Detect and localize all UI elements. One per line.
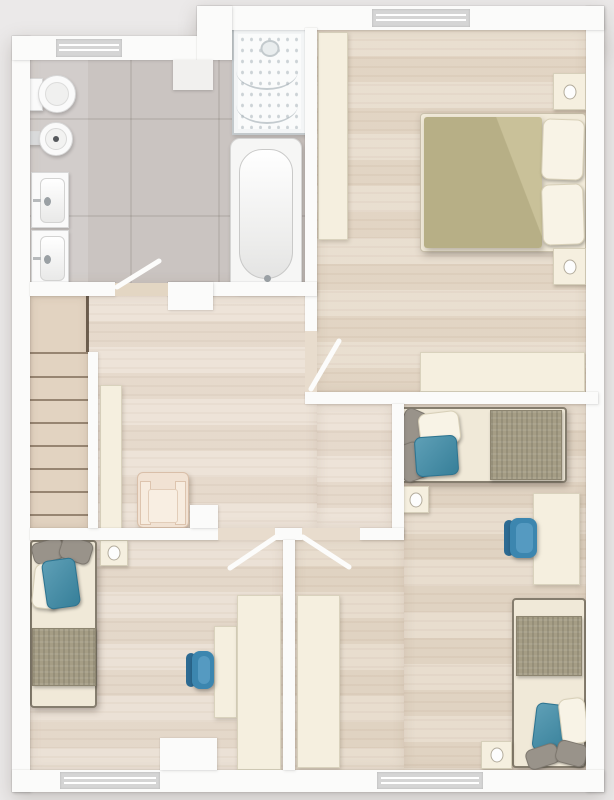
master-pillow-1 xyxy=(541,118,585,180)
tile-line xyxy=(130,45,132,283)
wall-bedroom-sw-north xyxy=(30,528,218,540)
vanity-basin-1-tap-icon xyxy=(44,197,51,206)
bedroom-east-nightstand-1 xyxy=(402,486,429,513)
window-bathroom-north xyxy=(56,39,122,57)
landing-armchair xyxy=(137,472,189,528)
headboard-cushion xyxy=(554,738,590,768)
shower-arc xyxy=(236,52,298,90)
chair-pad xyxy=(516,523,533,553)
vanity-basin-1-handle-icon xyxy=(33,199,41,202)
threshold-master xyxy=(305,331,317,392)
nightstand-knob-icon xyxy=(563,259,576,274)
vanity-basin-2 xyxy=(31,230,69,286)
master-nightstand-top xyxy=(553,73,586,110)
master-pillow-2 xyxy=(541,183,585,245)
chimney-breast-bathroom xyxy=(173,60,213,90)
chimney-breast-south xyxy=(160,738,217,770)
nightstand-knob-icon xyxy=(490,748,503,763)
wall-pillar-hall-north xyxy=(168,282,213,310)
window-master-north xyxy=(372,9,470,27)
tile-line xyxy=(218,45,220,283)
master-wardrobe-tall xyxy=(318,32,348,240)
vanity-basin-2-tap-icon xyxy=(44,255,51,264)
threshold-bedroom-southwest xyxy=(218,528,275,540)
toilet-bowl xyxy=(45,82,69,106)
bedroom-sw-wardrobe xyxy=(237,595,281,770)
stair-handrail xyxy=(86,295,89,352)
threshold-bedroom-east xyxy=(302,528,360,540)
nightstand-knob-icon xyxy=(563,84,576,99)
wall-bedrooms-divider xyxy=(283,540,295,770)
stair-tread-line xyxy=(30,514,88,516)
armchair-seat xyxy=(148,489,178,523)
bedroom-east-nightstand-2 xyxy=(481,741,512,769)
wall-master-south xyxy=(305,392,598,404)
bedroom-east-office-chair xyxy=(504,518,537,558)
stair-tread-line xyxy=(30,445,88,447)
bedroom-east-desk xyxy=(533,493,580,585)
bed-pillow-white xyxy=(557,697,589,746)
toilet xyxy=(38,75,76,113)
vanity-basin-1 xyxy=(31,172,69,228)
stair-tread-line xyxy=(30,376,88,378)
shower-enclosure xyxy=(232,28,307,135)
master-wardrobe-low xyxy=(420,352,585,392)
wall-bedroom-east-west xyxy=(392,404,404,538)
bedroom-east-single-bed-1 xyxy=(400,407,567,483)
bathtub-faucet-icon xyxy=(264,275,271,282)
master-nightstand-bottom xyxy=(553,248,586,285)
floor-plan xyxy=(0,0,614,800)
bedroom-east-wardrobe xyxy=(297,595,340,768)
wall-exterior-left xyxy=(12,36,30,792)
vanity-basin-2-handle-icon xyxy=(33,257,41,260)
bedroom-sw-office-chair xyxy=(186,651,214,689)
chair-pad xyxy=(198,656,210,684)
wall-bedroom-east-return xyxy=(360,528,404,540)
bedroom-sw-desk xyxy=(214,626,237,718)
bedroom-sw-nightstand xyxy=(100,540,128,566)
shower-drain-icon xyxy=(260,40,279,57)
wall-door-block-center xyxy=(275,528,302,540)
stair-tread-line xyxy=(30,491,88,493)
landing-console-shelf xyxy=(100,385,122,530)
nightstand-knob-icon xyxy=(409,492,422,507)
threshold-bathroom xyxy=(115,283,168,296)
stair-tread-line xyxy=(30,468,88,470)
master-double-bed xyxy=(420,113,586,252)
bed-pillow-teal xyxy=(414,435,460,478)
master-duvet xyxy=(424,117,542,248)
nightstand-knob-icon xyxy=(108,546,121,561)
shower-arc xyxy=(236,86,298,124)
round-washbasin xyxy=(39,122,73,156)
bathtub-basin xyxy=(239,149,293,279)
room-landing-floor-east xyxy=(317,404,392,528)
bed-blanket xyxy=(490,410,562,480)
bed-blanket xyxy=(516,616,582,676)
wall-stair-partition xyxy=(88,352,98,528)
bed-pillow-teal xyxy=(41,557,81,610)
bed-blanket xyxy=(32,628,96,686)
bedroom-east-single-bed-2 xyxy=(512,598,586,768)
bedroom-sw-single-bed xyxy=(30,540,97,708)
window-bedroom-sw-south xyxy=(60,772,160,789)
wall-pillar-hall-south xyxy=(190,505,218,528)
wall-bathroom-south-left xyxy=(30,282,115,296)
stair-tread-line xyxy=(30,422,88,424)
washbasin-drain-icon xyxy=(53,136,59,142)
stair-tread-line xyxy=(30,352,88,354)
wall-top-step-block xyxy=(197,6,232,60)
stair-tread-line xyxy=(30,399,88,401)
window-bedroom-east-south xyxy=(377,772,483,789)
bathtub xyxy=(230,138,302,292)
staircase xyxy=(30,295,88,528)
